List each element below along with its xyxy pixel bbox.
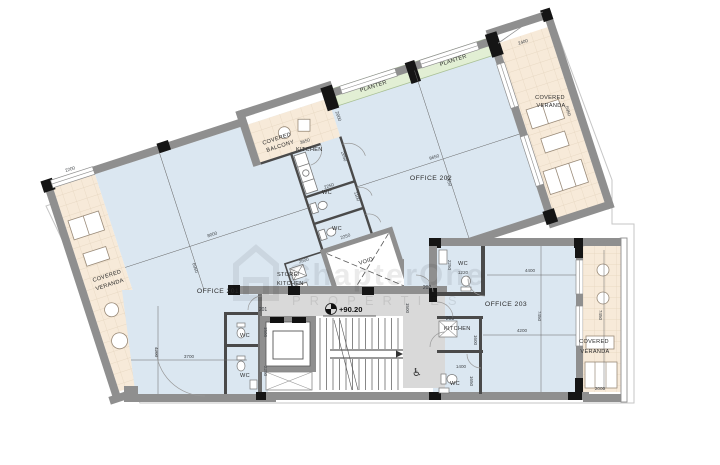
- o203-kitchen-label: KITCHEN: [444, 326, 471, 332]
- dim-o203-k: 1600: [473, 335, 478, 346]
- dim-veranda-r-width: 2000: [595, 386, 606, 391]
- stairwell: [316, 316, 403, 392]
- office201-label: OFFICE 201: [197, 288, 239, 295]
- core-bottom-wall: [256, 392, 452, 400]
- dim-o203-b: 4200: [517, 328, 528, 333]
- dim-o201-b-depth: 4200: [154, 347, 159, 358]
- o201-bottom-wall: [124, 394, 276, 402]
- wheelchair-icon: ♿: [412, 367, 422, 379]
- veranda-r-veranda: VERANDA: [580, 349, 609, 355]
- office202-label: OFFICE 202: [410, 175, 452, 182]
- o201-wc2-label: WC: [240, 373, 250, 379]
- veranda-r-covered: COVERED: [579, 339, 609, 345]
- elevator: [260, 316, 316, 372]
- veranda-tr-covered: COVERED: [535, 95, 565, 101]
- dim-o203-wc2-w: 1400: [456, 364, 467, 369]
- veranda-tr-veranda: VERANDA: [536, 103, 565, 109]
- dim-o201-wc2: 2250: [263, 366, 268, 377]
- watermark-brand: ChapterOne: [288, 257, 485, 292]
- floor-plan-drawing: 2200 8000 6950 9650 6950 PLANTER PLANTER…: [0, 0, 720, 465]
- core-wc1-label: WC: [322, 190, 332, 196]
- core-bottom-col-1: [256, 392, 266, 400]
- office203-label: OFFICE 203: [485, 301, 527, 308]
- o201-wc1-label: WC: [240, 333, 250, 339]
- dim-o203-wc2-d: 1650: [469, 376, 474, 387]
- dim-o201-b-width: 3700: [184, 354, 195, 359]
- core-wc2-label: WC: [332, 226, 342, 232]
- veranda-right: [583, 238, 627, 402]
- dim-o201-wc1: 1500: [263, 327, 268, 338]
- floor-plan-canvas: 2200 8000 6950 9650 6950 PLANTER PLANTER…: [0, 0, 720, 465]
- door-203-label: 203: [446, 316, 455, 322]
- dim-o203-a: 4400: [525, 268, 536, 273]
- dim-veranda-r-len: 7450: [598, 310, 603, 321]
- dim-o203-depth: 7450: [537, 311, 542, 322]
- o201-bottom-corner: [124, 386, 138, 400]
- o203-wc-bottom-label: WC: [450, 381, 460, 387]
- shaft-x-box: [266, 372, 312, 390]
- kitchen-top-label: KITCHEN: [296, 147, 323, 153]
- watermark-sub: PROPERTIES: [292, 293, 466, 308]
- dim-window-left: 2200: [64, 165, 76, 173]
- door-201-label: 201: [259, 307, 268, 313]
